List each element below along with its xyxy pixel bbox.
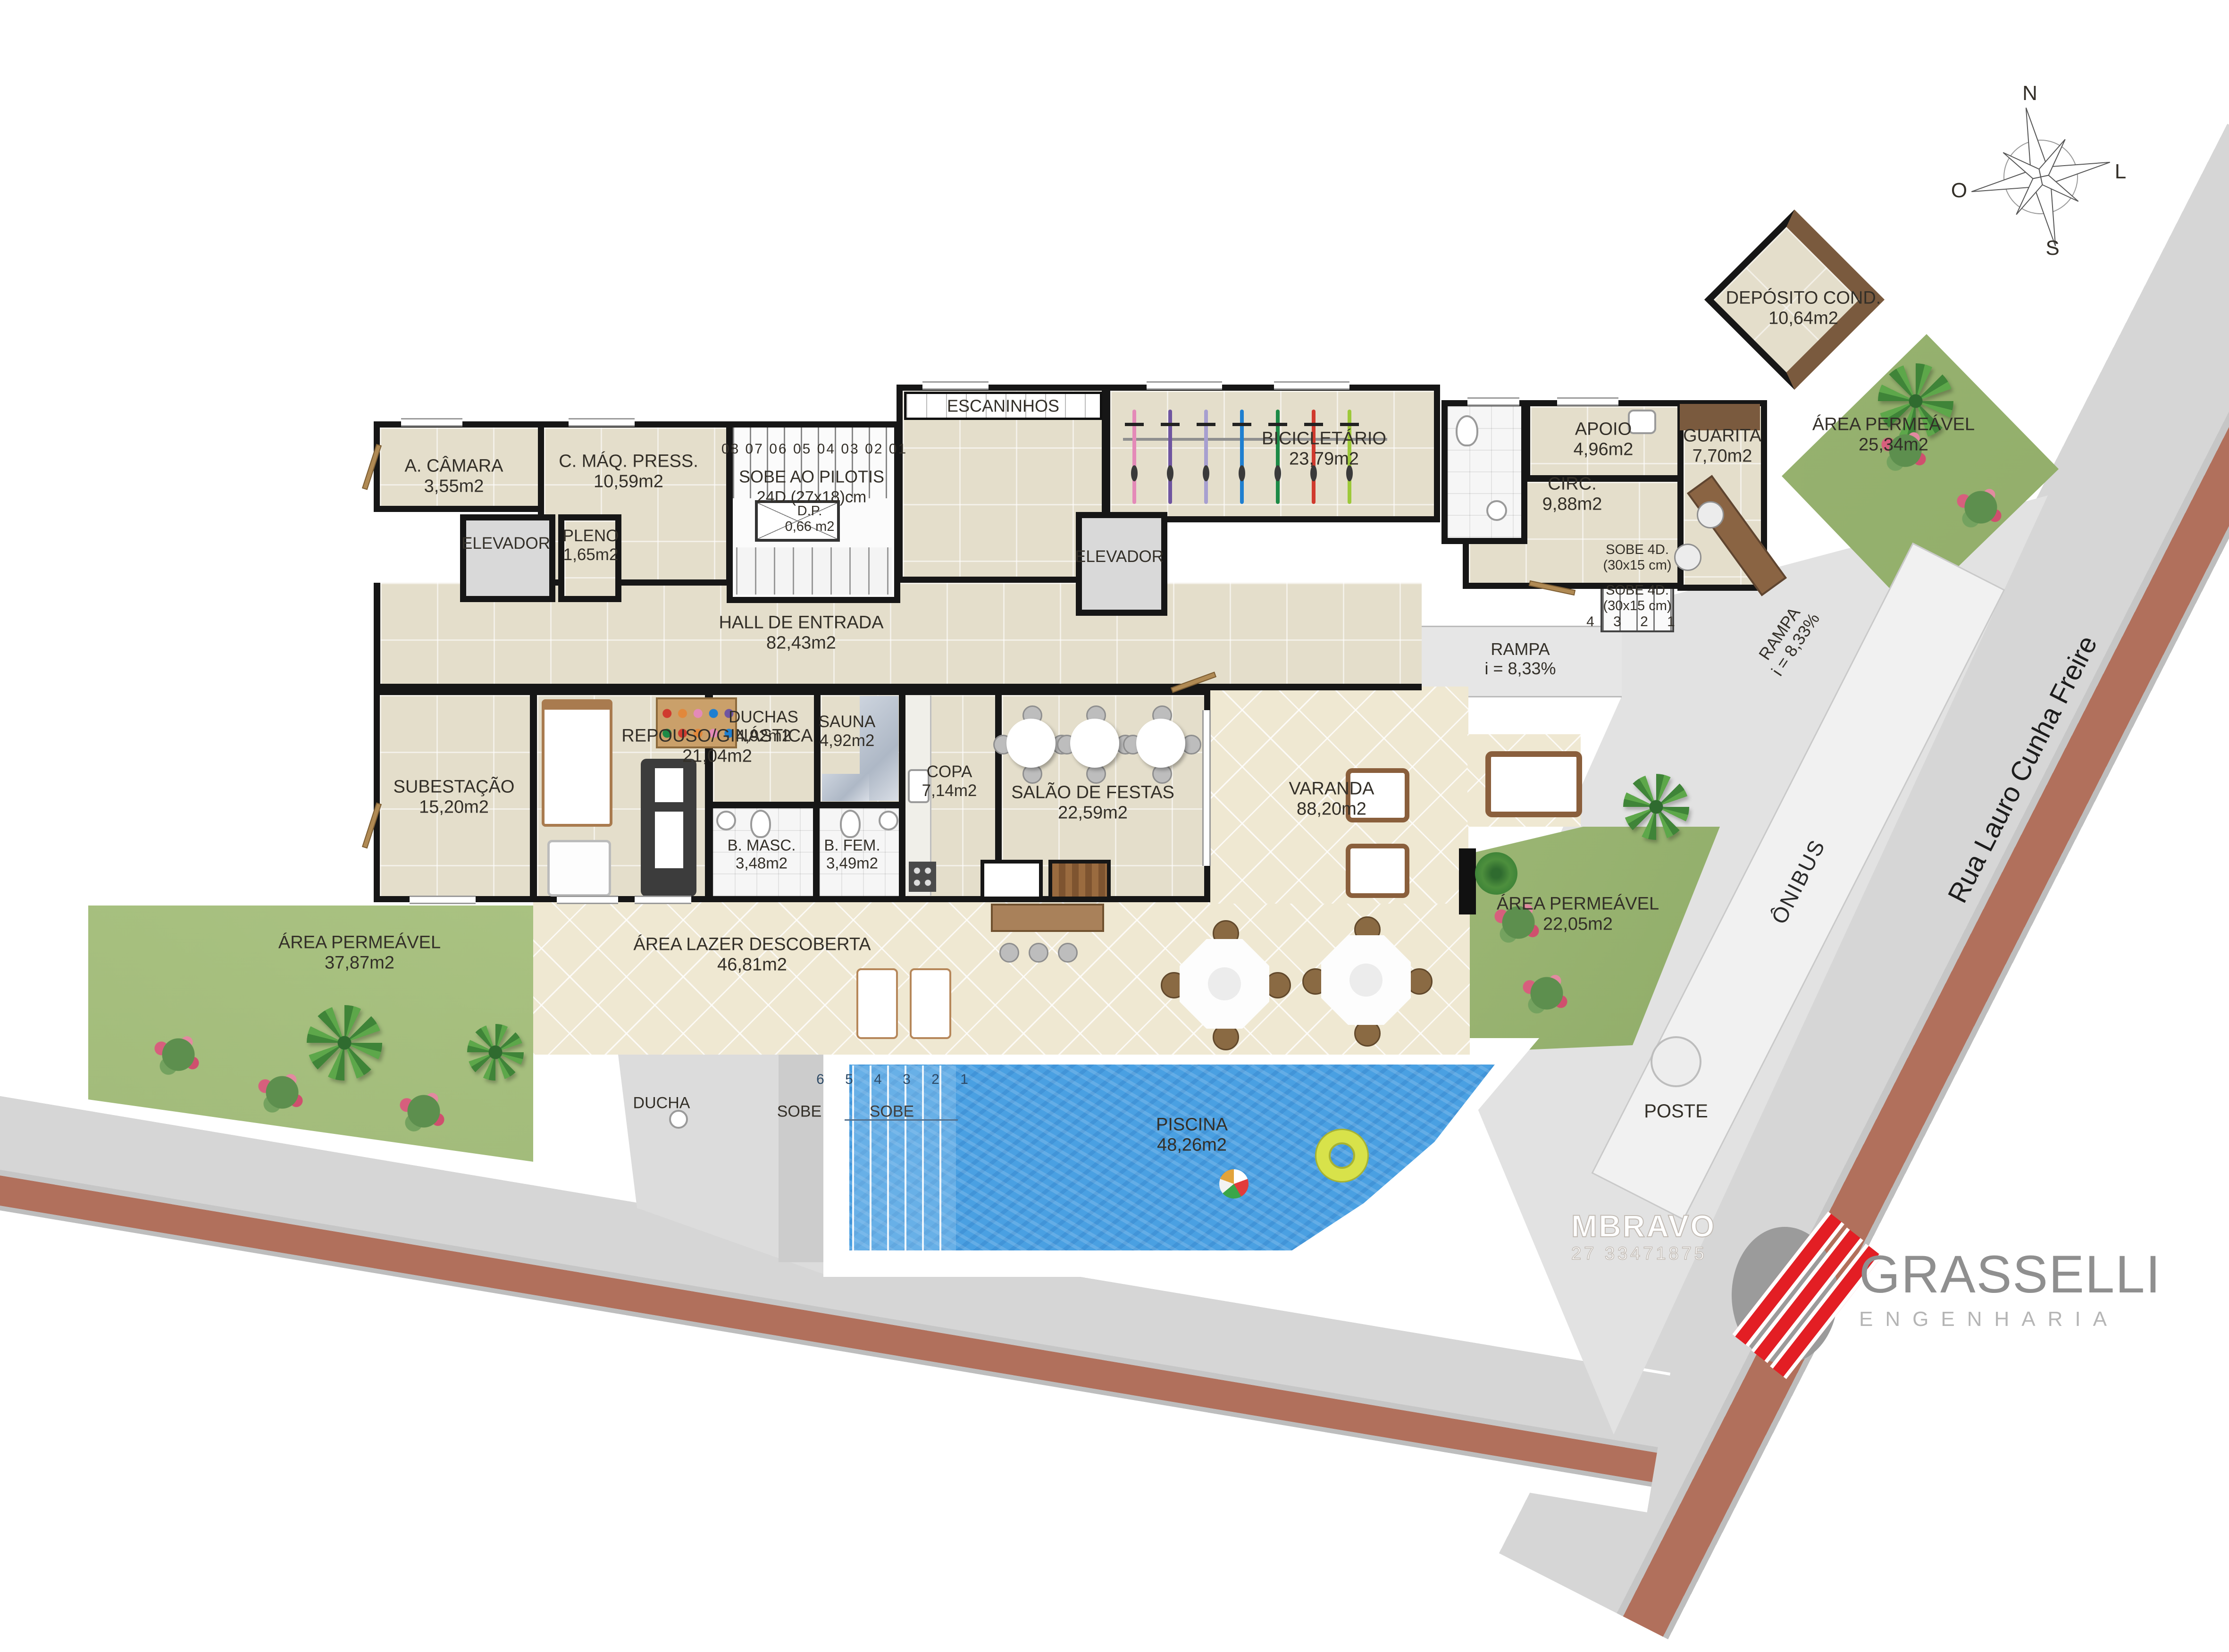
round-table: [1006, 719, 1056, 768]
toilet-icon: [750, 810, 771, 838]
label-c-maq-press: C. MÁQ. PRESS. 10,59m2: [559, 452, 698, 493]
label-sobe-deck: SOBE: [777, 1103, 821, 1121]
logo-sub: ENGENHARIA: [1859, 1308, 2095, 1331]
label-sobe-ao-pilotis: SOBE AO PILOTIS: [739, 467, 884, 486]
label-pleno: PLENO 1,65m2: [563, 527, 619, 564]
stool-icon: [1058, 943, 1078, 963]
flower-bush-icon: [387, 1085, 458, 1137]
label-sobe-piscina: SOBE: [870, 1103, 914, 1121]
label-deposito-cond: DEPÓSITO COND. 10,64m2: [1726, 288, 1881, 329]
white-bench-icon: [547, 840, 611, 897]
pool-steps: [852, 1065, 956, 1250]
window: [635, 896, 691, 904]
round-table: [1136, 719, 1185, 768]
massage-bed-icon: [542, 699, 612, 827]
beach-ball-icon: [1219, 1169, 1249, 1199]
label-bicicletario: BICICLETÁRIO 23,79m2: [1262, 429, 1386, 470]
stool-icon: [1029, 943, 1048, 963]
label-piscina: PISCINA 48,26m2: [1156, 1115, 1228, 1156]
round-table: [1070, 719, 1119, 768]
label-area-permeavel-w: ÁREA PERMEÁVEL 37,87m2: [278, 933, 441, 974]
window: [1557, 397, 1618, 406]
label-area-lazer: ÁREA LAZER DESCOBERTA 46,81m2: [633, 935, 871, 976]
flower-bush-icon: [142, 1029, 212, 1081]
service-wash-cell: [980, 860, 1043, 900]
room-wc-guarita: [1441, 400, 1527, 544]
label-compass-n: N: [2022, 82, 2037, 105]
label-area-permeavel-e: ÁREA PERMEÁVEL 22,05m2: [1497, 894, 1659, 935]
stair-lower-flight: [736, 547, 892, 595]
shower-head-icon: [669, 1110, 688, 1129]
company-logo: GRASSELLI ENGENHARIA: [1718, 1199, 2095, 1368]
label-compass-l: L: [2115, 160, 2126, 184]
floor-plan: ÔNIBUS Rua Lauro Cunha Freire: [0, 0, 2229, 1576]
armchair-icon: [1346, 844, 1409, 898]
label-varanda: VARANDA 88,20m2: [1289, 779, 1374, 820]
label-guarita: GUARITA 7,70m2: [1683, 426, 1761, 467]
parasol-table: [1321, 935, 1411, 1025]
label-apoio: APOIO 4,96m2: [1574, 419, 1634, 461]
floor-plan-sheet: { "sheet": {"kind": "Planta do pavimento…: [0, 0, 2229, 1576]
label-poste: POSTE: [1644, 1101, 1708, 1123]
palm-icon: [307, 1005, 382, 1081]
sun-lounger-icon: [856, 968, 898, 1039]
bicycle-icon: [1240, 410, 1244, 504]
planter-icon: [1459, 848, 1476, 914]
compass-rose-icon: [1953, 99, 2128, 260]
label-ducha-externa: DUCHA: [633, 1094, 690, 1113]
label-sobe4d-2: SOBE 4D. (30x15 cm): [1603, 583, 1671, 614]
plant-icon: [1475, 852, 1517, 895]
sink-icon: [879, 811, 898, 830]
flower-bush-icon: [1944, 481, 2015, 533]
office-chair-icon: [1674, 544, 1701, 571]
palm-icon: [1623, 774, 1689, 840]
label-area-permeavel-ne: ÁREA PERMEÁVEL 25,34m2: [1812, 415, 1975, 456]
sofa-icon: [1485, 751, 1582, 817]
label-elevador-a: ELEVADOR: [461, 534, 550, 553]
label-dp: D.P. 0,66 m2: [785, 503, 835, 535]
window: [1467, 397, 1519, 406]
label-piscina-steps: 6 5 4 3 2 1: [816, 1072, 977, 1088]
label-sobe4d-1: SOBE 4D. (30x15 cm): [1603, 542, 1671, 573]
logo-name: GRASSELLI: [1859, 1244, 2095, 1305]
sun-lounger-icon: [910, 968, 951, 1039]
label-salao-de-festas: SALÃO DE FESTAS 22,59m2: [1011, 783, 1174, 824]
post-icon: [1651, 1036, 1701, 1087]
label-duchas: DUCHAS 4,92m2: [729, 708, 798, 746]
label-elevador-b: ELEVADOR: [1075, 547, 1164, 566]
treadmill-icon: [641, 802, 696, 897]
toilet-icon: [840, 810, 861, 838]
label-sauna: SAUNA 4,92m2: [819, 713, 876, 750]
label-escaninhos: ESCANINHOS: [947, 396, 1059, 415]
label-compass-s: S: [2045, 236, 2059, 260]
bar-counter: [991, 904, 1104, 932]
label-copa: COPA 7,14m2: [922, 763, 977, 800]
room-elevador-a: [460, 514, 555, 602]
label-compass-o: O: [1951, 179, 1967, 202]
watermark-phone: 27 33471875: [1571, 1244, 1716, 1264]
palm-icon: [467, 1024, 524, 1081]
bicycle-icon: [1168, 410, 1172, 504]
sink-icon: [1486, 500, 1507, 521]
label-pilotis-steps: 08 07 06 05 04 03 02 01: [721, 441, 907, 457]
bicycle-icon: [1132, 410, 1136, 504]
stool-icon: [999, 943, 1019, 963]
label-rampa-h: RAMPA i = 8,33%: [1484, 639, 1556, 678]
salao-varanda-window: [1202, 710, 1211, 866]
office-chair-icon: [1697, 501, 1724, 528]
swim-ring-icon: [1316, 1130, 1367, 1181]
label-hall-de-entrada: HALL DE ENTRADA 82,43m2: [719, 613, 883, 654]
window: [557, 896, 618, 904]
label-sobe4d-numbers: 4 3 2 1: [1586, 614, 1683, 630]
parasol-table: [1180, 939, 1269, 1029]
window: [401, 418, 462, 427]
bicycle-icon: [1204, 410, 1208, 504]
service-sauna-stove-cell: [1048, 860, 1111, 900]
watermark-name: MBRAVO: [1571, 1208, 1716, 1244]
label-a-camara: A. CÂMARA 3,55m2: [404, 456, 503, 497]
window: [1147, 381, 1222, 390]
label-circ: CIRC. 9,88m2: [1542, 474, 1602, 515]
sauna-bench: [822, 774, 869, 801]
window: [410, 896, 476, 904]
stove-icon: [909, 862, 936, 892]
toilet-icon: [1456, 415, 1478, 446]
window: [922, 381, 989, 390]
label-b-fem: B. FEM. 3,49m2: [824, 836, 880, 872]
window: [1274, 381, 1349, 390]
sink-icon: [716, 811, 736, 830]
flower-bush-icon: [245, 1066, 316, 1118]
flower-bush-icon: [1510, 967, 1581, 1019]
label-b-masc: B. MASC. 3,48m2: [728, 836, 796, 872]
window: [569, 418, 635, 427]
label-subestacao: SUBESTAÇÃO 15,20m2: [394, 777, 515, 818]
watermark: MBRAVO 27 33471875: [1571, 1208, 1716, 1264]
